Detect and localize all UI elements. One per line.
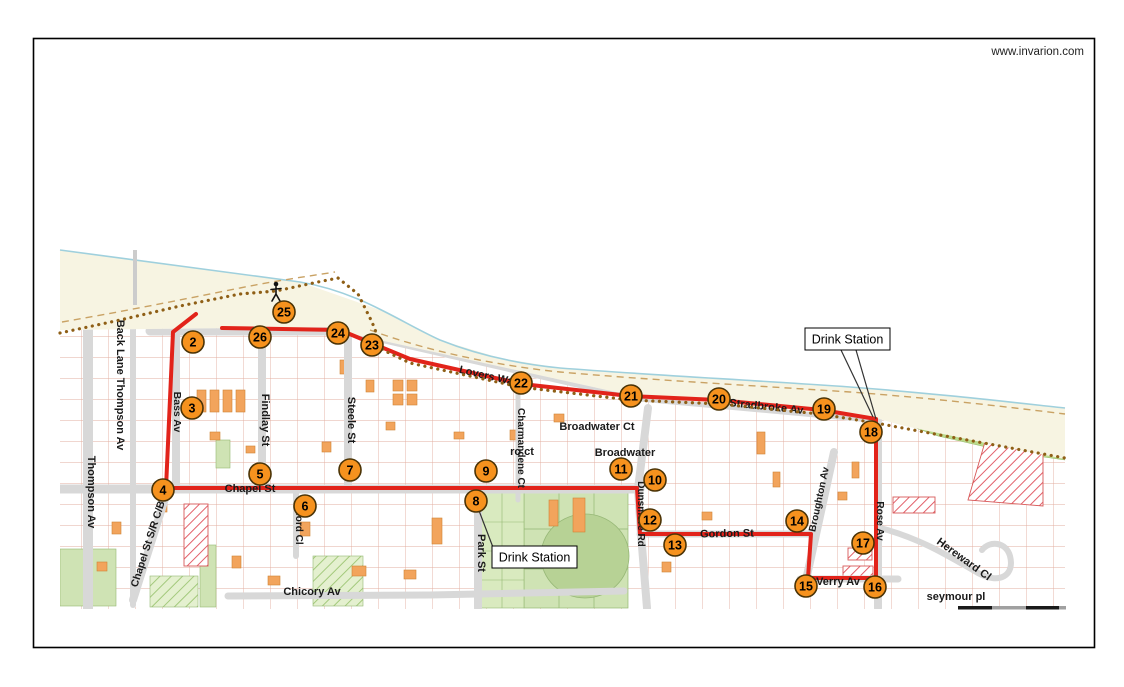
route-marker-13[interactable]: 13 <box>664 534 686 556</box>
map-shape <box>184 504 208 566</box>
map-shape <box>216 440 230 468</box>
route-marker-19[interactable]: 19 <box>813 398 835 420</box>
marker-number: 15 <box>799 580 813 594</box>
map-shape <box>232 556 241 568</box>
marker-number: 10 <box>648 474 662 488</box>
marker-number: 14 <box>790 515 804 529</box>
marker-number: 17 <box>856 537 870 551</box>
street-label-ro-ct: ro ct <box>510 446 534 458</box>
route-marker-22[interactable]: 22 <box>510 372 532 394</box>
marker-number: 8 <box>473 495 480 509</box>
street-label-gordon-st: Gordon St <box>700 528 754 541</box>
route-marker-10[interactable]: 10 <box>644 469 666 491</box>
marker-number: 3 <box>189 402 196 416</box>
marker-number: 24 <box>331 327 345 341</box>
route-marker-14[interactable]: 14 <box>786 510 808 532</box>
route-marker-20[interactable]: 20 <box>708 388 730 410</box>
marker-number: 26 <box>253 331 267 345</box>
route-marker-17[interactable]: 17 <box>852 532 874 554</box>
street-label-chapel-st: Chapel St <box>225 483 276 495</box>
map-shape <box>223 390 232 412</box>
map-shape <box>573 498 585 532</box>
route-marker-9[interactable]: 9 <box>475 460 497 482</box>
map-shape <box>838 492 847 500</box>
map-shape <box>366 380 374 392</box>
street-label-seymour-pl: seymour pl <box>927 591 986 603</box>
map-shape <box>352 566 366 576</box>
map-shape <box>757 432 765 454</box>
invarion-watermark-link[interactable]: www.invarion.com <box>990 46 1084 58</box>
marker-number: 21 <box>624 390 638 404</box>
street-label-rose-av: Rose Av <box>874 501 885 541</box>
street-label-park-st: Park St <box>475 534 487 572</box>
route-marker-15[interactable]: 15 <box>795 575 817 597</box>
scale-segment-2 <box>1026 606 1059 610</box>
street-label-findlay-st: Findlay St <box>259 394 271 447</box>
route-marker-25[interactable]: 25 <box>273 301 295 323</box>
route-marker-8[interactable]: 8 <box>465 490 487 512</box>
map-shape <box>210 432 220 440</box>
marker-number: 6 <box>302 500 309 514</box>
scale-segment-3 <box>1059 606 1066 610</box>
map-shape <box>246 446 255 453</box>
marker-number: 18 <box>864 426 878 440</box>
street-label-chicory-av: Chicory Av <box>283 586 341 598</box>
route-marker-18[interactable]: 18 <box>860 421 882 443</box>
route-marker-7[interactable]: 7 <box>339 459 361 481</box>
route-marker-26[interactable]: 26 <box>249 326 271 348</box>
marker-number: 13 <box>668 539 682 553</box>
route-marker-11[interactable]: 11 <box>610 458 632 480</box>
map-shape <box>407 394 417 405</box>
callout-label: Drink Station <box>499 551 571 565</box>
street-label-thompson-av: Thompson Av <box>85 456 97 529</box>
marker-number: 11 <box>614 463 627 477</box>
map-shape <box>112 522 121 534</box>
marker-number: 19 <box>817 403 831 417</box>
map-shape <box>702 512 712 520</box>
scale-segment-1 <box>992 606 1026 610</box>
map-shape <box>407 380 417 391</box>
map-shape <box>893 497 935 513</box>
map-shape <box>454 432 464 439</box>
map-shape <box>852 462 859 478</box>
route-marker-6[interactable]: 6 <box>294 495 316 517</box>
map-shape <box>236 390 245 412</box>
route-marker-4[interactable]: 4 <box>152 479 174 501</box>
map-shape <box>274 282 279 287</box>
marker-number: 7 <box>347 464 354 478</box>
route-marker-16[interactable]: 16 <box>864 576 886 598</box>
street-label-broadwater-ct: Broadwater Ct <box>559 421 635 433</box>
marker-number: 2 <box>190 336 197 350</box>
map-canvas: www.invarion.com <box>0 0 1124 687</box>
street-label-steele-st: Steele St <box>345 397 357 444</box>
marker-number: 12 <box>643 514 657 528</box>
route-marker-24[interactable]: 24 <box>327 322 349 344</box>
map-shape <box>549 500 558 526</box>
route-marker-5[interactable]: 5 <box>249 463 271 485</box>
marker-number: 9 <box>483 465 490 479</box>
marker-number: 16 <box>868 581 882 595</box>
map-shape <box>210 390 219 412</box>
map-shape <box>404 570 416 579</box>
marker-number: 23 <box>365 339 379 353</box>
route-marker-2[interactable]: 2 <box>182 331 204 353</box>
marker-number: 22 <box>514 377 528 391</box>
route-marker-21[interactable]: 21 <box>620 385 642 407</box>
street-label-back-lane-thompson-av: Back Lane Thompson Av <box>114 320 126 451</box>
street-label-verry-av: Verry Av <box>816 576 861 588</box>
marker-number: 5 <box>257 468 264 482</box>
marker-number: 4 <box>160 484 167 498</box>
route-marker-3[interactable]: 3 <box>181 397 203 419</box>
page: www.invarion.com <box>0 0 1124 687</box>
map-shape <box>662 562 671 572</box>
route-marker-12[interactable]: 12 <box>639 509 661 531</box>
map-shape <box>150 576 198 607</box>
map-shape <box>393 380 403 391</box>
scale-bar <box>958 606 1066 610</box>
map-shape <box>773 472 780 487</box>
map-shape <box>393 394 403 405</box>
map-shape <box>268 576 280 585</box>
map-shape <box>386 422 395 430</box>
map-shape <box>322 442 331 452</box>
route-marker-23[interactable]: 23 <box>361 334 383 356</box>
callout-label: Drink Station <box>812 333 884 347</box>
street-label-broadwater: Broadwater <box>595 447 656 459</box>
scale-segment-0 <box>958 606 992 610</box>
marker-number: 20 <box>712 393 726 407</box>
map-shape <box>97 562 107 571</box>
marker-number: 25 <box>277 306 291 320</box>
map-shape <box>432 518 442 544</box>
